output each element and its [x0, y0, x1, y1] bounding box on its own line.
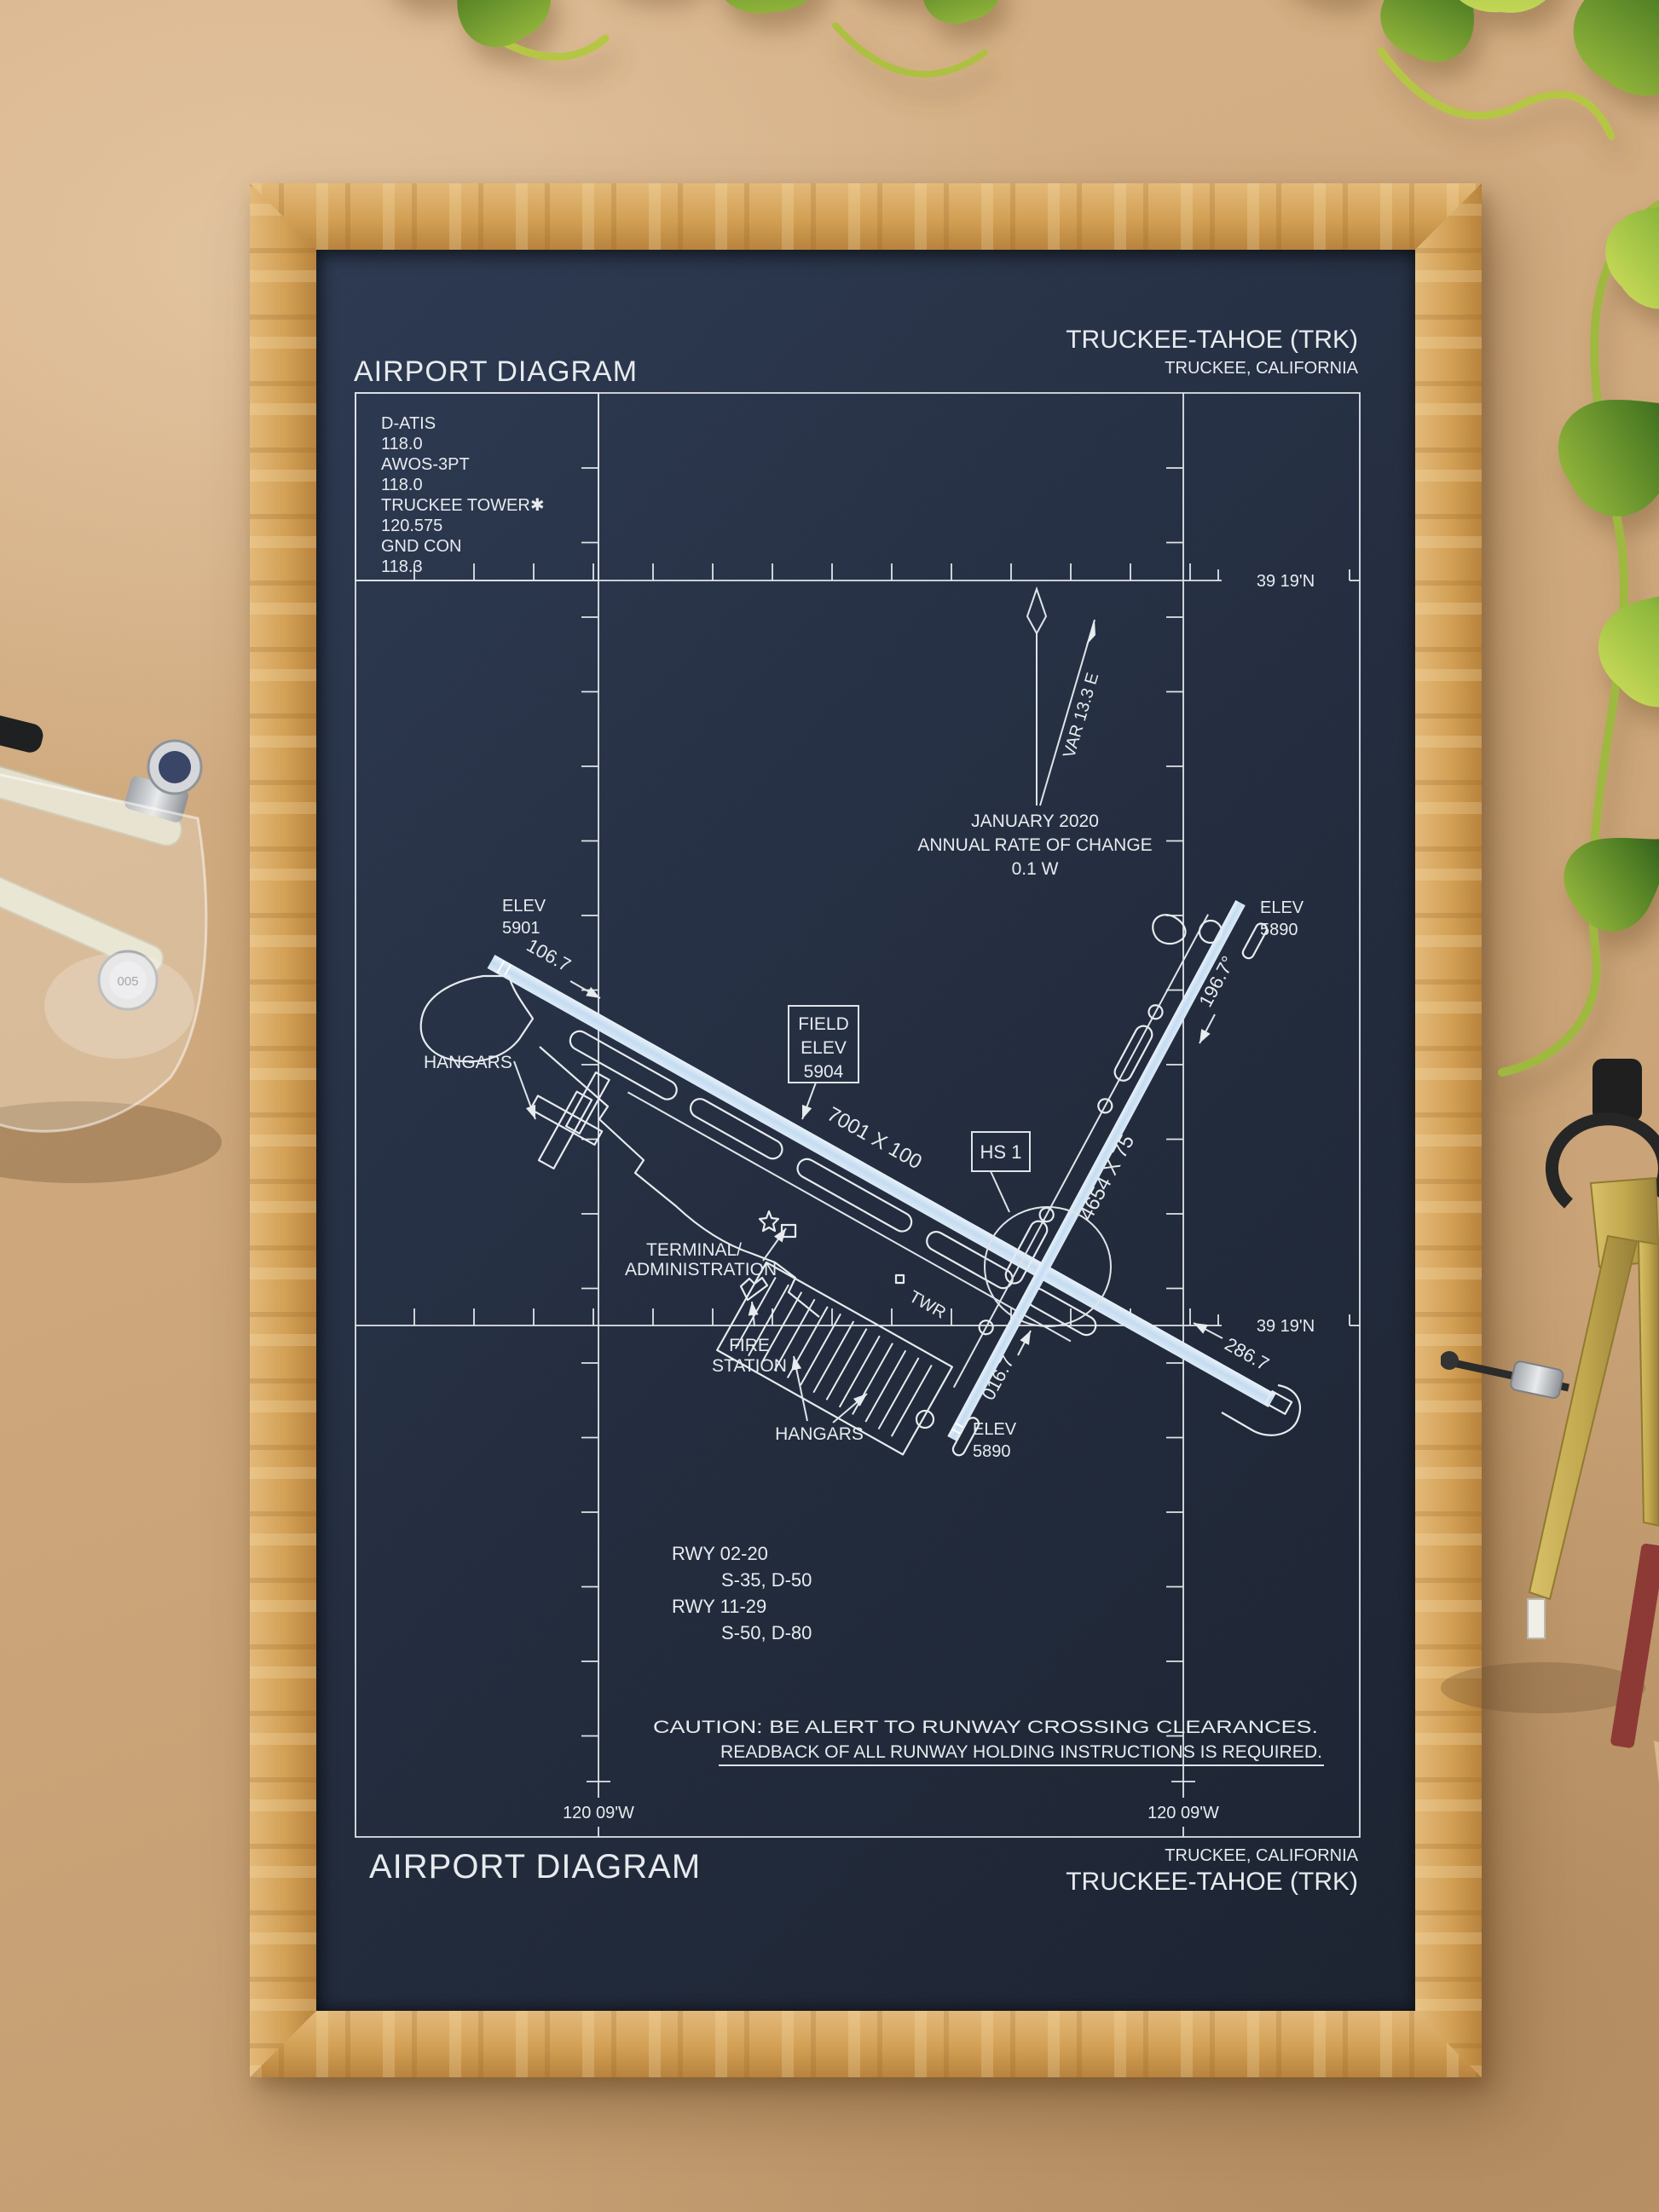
- svg-text:RWY 02-20: RWY 02-20: [672, 1543, 768, 1564]
- latitude-label-top: 39 19'N: [1257, 572, 1315, 591]
- comm-line: 118.3: [381, 557, 423, 576]
- variation-rate-label: ANNUAL RATE OF CHANGE: [917, 835, 1152, 855]
- pen-cup: 005: [0, 665, 290, 1210]
- frame-side-right: [1415, 183, 1482, 2077]
- variation-rate-value: 0.1 W: [1012, 859, 1059, 879]
- glass-cup: [0, 767, 206, 1131]
- svg-text:FIRE: FIRE: [729, 1336, 770, 1355]
- comm-line: D-ATIS: [381, 414, 436, 433]
- footer-title: AIRPORT DIAGRAM: [369, 1848, 701, 1886]
- svg-text:CAUTION: BE ALERT TO RUNWAY CR: CAUTION: BE ALERT TO RUNWAY CROSSING CLE…: [653, 1717, 1318, 1737]
- svg-text:HANGARS: HANGARS: [775, 1424, 864, 1444]
- pen-cap-size-label: 005: [117, 974, 138, 989]
- field-elev-l3: 5904: [804, 1062, 844, 1082]
- airport-city: TRUCKEE, CALIFORNIA: [1165, 359, 1358, 378]
- airport-diagram-poster: D-ATIS 118.0 AWOS-3PT 118.0 TRUCKEE TOWE…: [316, 250, 1415, 2011]
- frame-side-bottom: [250, 2011, 1482, 2077]
- variation-date: JANUARY 2020: [971, 811, 1099, 831]
- svg-text:ELEV: ELEV: [502, 897, 546, 915]
- comm-line: AWOS-3PT: [381, 455, 470, 474]
- airport-diagram-print: D-ATIS 118.0 AWOS-3PT 118.0 TRUCKEE TOWE…: [316, 250, 1415, 2011]
- svg-text:HANGARS: HANGARS: [424, 1053, 512, 1072]
- longitude-label-right: 120 09'W: [1147, 1804, 1219, 1822]
- svg-text:S-50, D-80: S-50, D-80: [721, 1622, 812, 1643]
- hot-spot-label: HS 1: [980, 1141, 1022, 1163]
- svg-text:5890: 5890: [973, 1442, 1011, 1461]
- technical-pens: 005: [0, 708, 201, 1009]
- airport-name: TRUCKEE-TAHOE (TRK): [1066, 326, 1358, 354]
- longitude-label-left: 120 09'W: [563, 1804, 634, 1822]
- comm-line: 118.0: [381, 435, 423, 453]
- svg-text:ELEV: ELEV: [1260, 898, 1304, 917]
- glass-highlight: [44, 953, 194, 1059]
- svg-text:TERMINAL/: TERMINAL/: [646, 1240, 742, 1260]
- comm-line: 118.0: [381, 476, 423, 494]
- svg-text:5901: 5901: [502, 919, 540, 938]
- comm-line: TRUCKEE TOWER✱: [381, 496, 545, 515]
- svg-text:RWY 11-29: RWY 11-29: [672, 1596, 766, 1617]
- caution-note: CAUTION: BE ALERT TO RUNWAY CROSSING CLE…: [653, 1717, 1324, 1765]
- svg-text:ELEV: ELEV: [973, 1420, 1017, 1439]
- footer-airport: TRUCKEE-TAHOE (TRK): [1066, 1868, 1358, 1896]
- field-elev-l2: ELEV: [801, 1038, 847, 1058]
- field-elev-l1: FIELD: [798, 1014, 849, 1034]
- oak-frame: D-ATIS 118.0 AWOS-3PT 118.0 TRUCKEE TOWE…: [250, 183, 1482, 2077]
- frame-side-top: [250, 183, 1482, 250]
- svg-text:STATION: STATION: [712, 1356, 787, 1376]
- comm-line: GND CON: [381, 537, 461, 556]
- svg-text:ADMINISTRATION: ADMINISTRATION: [625, 1260, 777, 1279]
- cup-shadow: [0, 1101, 222, 1183]
- frame-side-left: [250, 183, 316, 2077]
- svg-text:S-35, D-50: S-35, D-50: [721, 1569, 812, 1591]
- svg-text:READBACK OF ALL RUNWAY HOLDING: READBACK OF ALL RUNWAY HOLDING INSTRUCTI…: [720, 1741, 1322, 1762]
- latitude-label-mid: 39 19'N: [1257, 1317, 1315, 1336]
- page-title: AIRPORT DIAGRAM: [354, 355, 638, 388]
- footer-city: TRUCKEE, CALIFORNIA: [1165, 1846, 1358, 1865]
- comm-line: 120.575: [381, 517, 442, 535]
- photo-scene: D-ATIS 118.0 AWOS-3PT 118.0 TRUCKEE TOWE…: [0, 0, 1659, 2212]
- svg-text:5890: 5890: [1260, 921, 1298, 939]
